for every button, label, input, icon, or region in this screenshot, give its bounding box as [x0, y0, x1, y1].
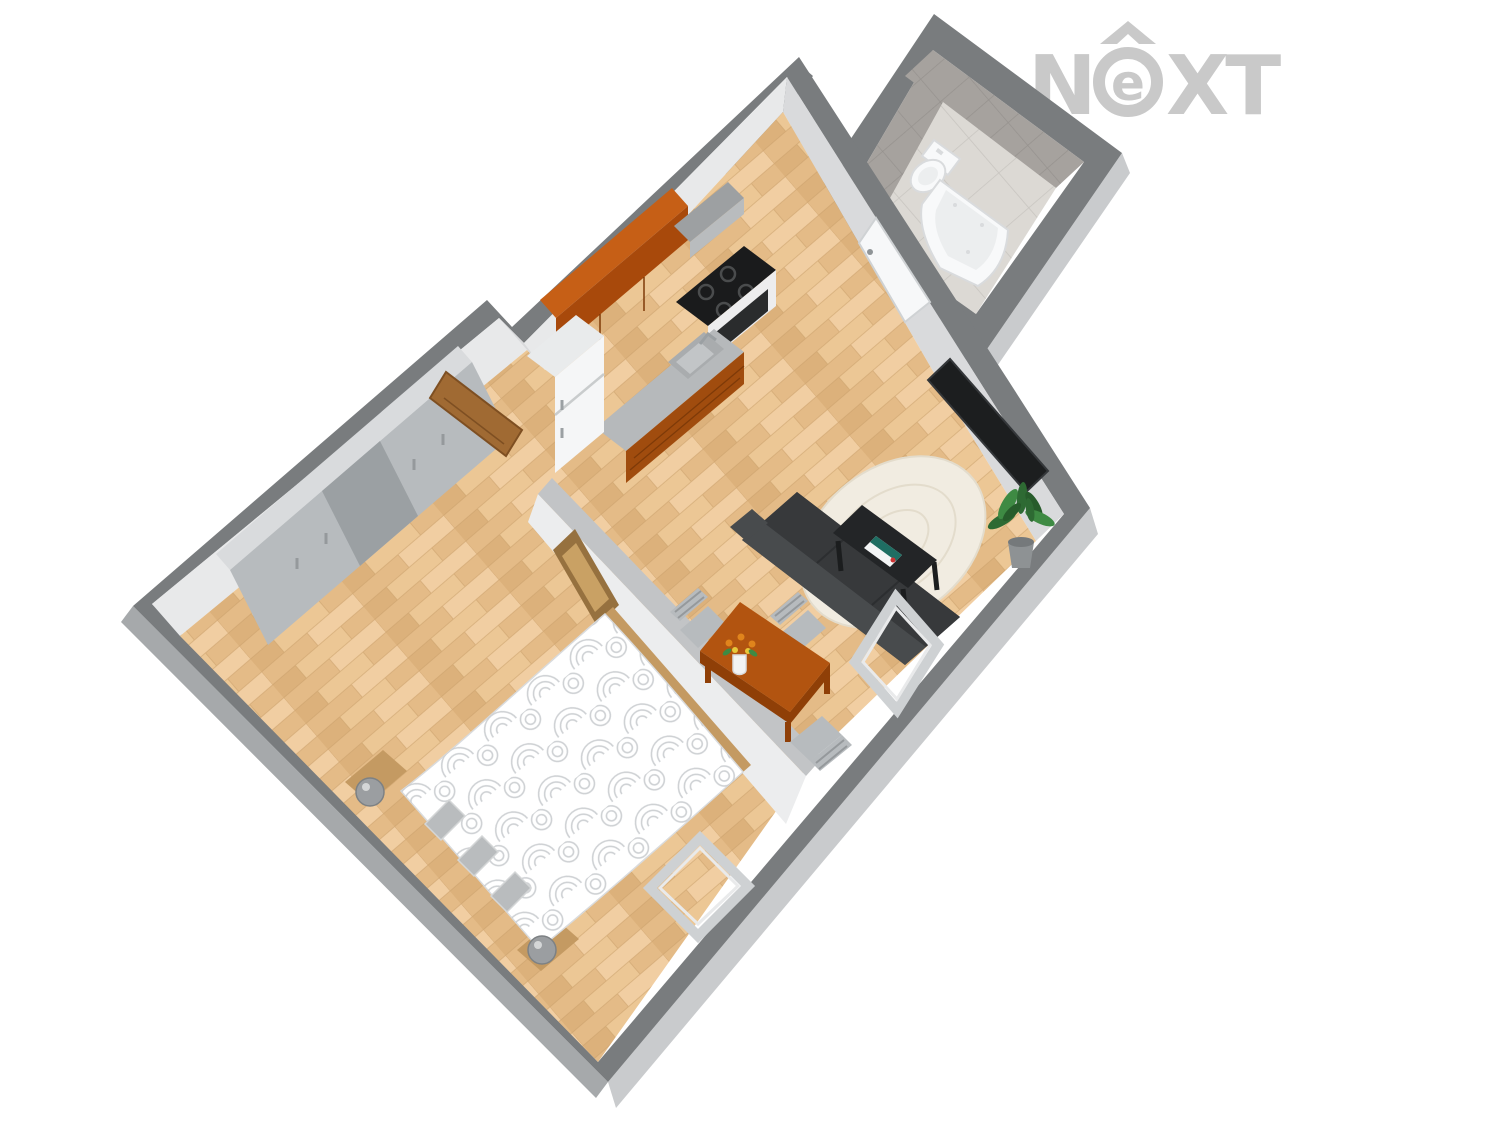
flower — [726, 640, 733, 647]
bedside-lamp-2 — [528, 936, 556, 964]
bathroom-door-handle — [867, 249, 873, 255]
logo-caret-icon — [1100, 21, 1156, 44]
bedside-lamp-1 — [356, 778, 384, 806]
bedside-lamp-1-highlight — [362, 783, 370, 791]
plant-pot-rim — [1008, 537, 1034, 547]
bathtub-jet — [953, 203, 957, 207]
bathtub-jet — [966, 250, 970, 254]
floor-plan-render: N e XT — [0, 0, 1500, 1125]
logo-letters-xt: XT — [1166, 39, 1281, 134]
vase — [733, 655, 746, 675]
bathtub-jet — [980, 223, 984, 227]
bedside-lamp-2-highlight — [534, 941, 542, 949]
flower — [749, 641, 756, 648]
logo-letter-e: e — [1111, 54, 1145, 112]
magazine-dot — [891, 558, 896, 563]
flower — [732, 647, 738, 653]
flower — [738, 634, 745, 641]
